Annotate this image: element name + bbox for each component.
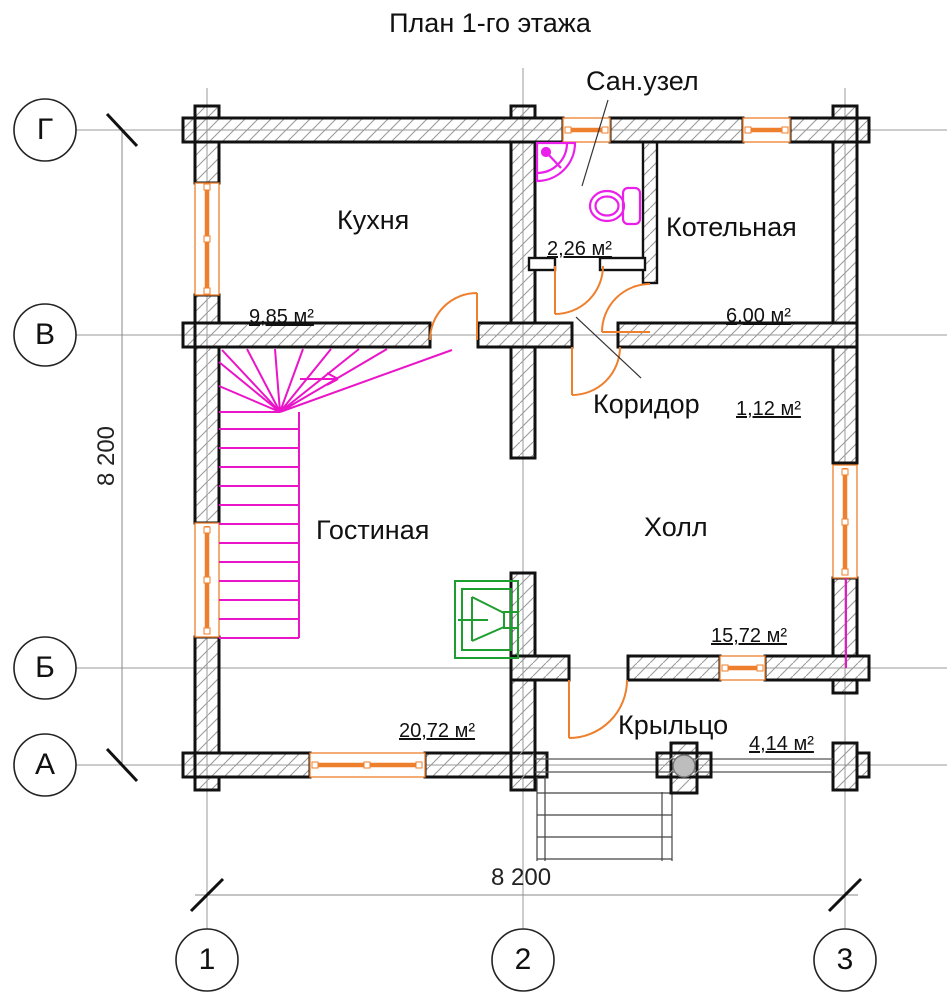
axis-label-v: В xyxy=(14,317,76,353)
room-label-porch: Крыльцо xyxy=(618,710,728,741)
axis-label-1: 1 xyxy=(176,942,238,978)
dimension-left: 8 200 xyxy=(93,411,121,501)
staircase xyxy=(219,349,452,638)
porch xyxy=(535,743,833,861)
room-label-hall: Холл xyxy=(644,512,708,543)
shower-icon xyxy=(537,143,575,181)
area-label-living: 20,72 м² xyxy=(399,720,475,743)
floor-plan-drawing xyxy=(0,0,949,1000)
area-label-corridor: 1,12 м² xyxy=(736,398,801,421)
room-label-living: Гостиная xyxy=(316,515,429,546)
fireplace-icon xyxy=(455,581,518,658)
window-boiler-north xyxy=(743,118,790,142)
area-label-porch: 4,14 м² xyxy=(749,733,814,756)
window-hall-east xyxy=(833,465,857,578)
area-label-hall: 15,72 м² xyxy=(711,625,787,648)
axis-label-g: Г xyxy=(14,112,76,148)
window-hall-south xyxy=(720,656,765,680)
door-kitchen xyxy=(430,293,477,340)
page-title: План 1-го этажа xyxy=(340,8,640,39)
dimension-bottom: 8 200 xyxy=(491,864,551,892)
door-bathroom xyxy=(555,266,603,314)
bathroom-fixtures xyxy=(537,143,640,224)
room-label-corridor: Коридор xyxy=(593,389,700,420)
window-kitchen-west xyxy=(195,183,219,295)
area-label-boiler: 6,00 м² xyxy=(726,305,791,328)
porch-column xyxy=(657,743,711,793)
window-living-south xyxy=(310,753,425,777)
stair-direction-arrow xyxy=(300,373,338,385)
axis-label-3: 3 xyxy=(814,942,876,978)
floor-plan: План 1-го этажа Сан.узел Кухня Котельная… xyxy=(0,0,949,1000)
axis-label-b: Б xyxy=(14,650,76,686)
room-label-boiler: Котельная xyxy=(666,212,797,243)
room-label-bathroom: Сан.узел xyxy=(586,66,699,97)
leader-bathroom xyxy=(582,100,608,186)
toilet-icon xyxy=(590,188,640,224)
porch-steps xyxy=(537,777,672,861)
axis-label-a: А xyxy=(14,747,76,783)
axis-label-2: 2 xyxy=(492,942,554,978)
area-label-bathroom: 2,26 м² xyxy=(547,238,612,261)
door-corridor-hall xyxy=(572,347,620,395)
room-label-kitchen: Кухня xyxy=(337,205,409,236)
area-label-kitchen: 9,85 м² xyxy=(249,306,314,329)
window-living-west xyxy=(195,523,219,637)
window-bathroom-north xyxy=(563,118,610,142)
